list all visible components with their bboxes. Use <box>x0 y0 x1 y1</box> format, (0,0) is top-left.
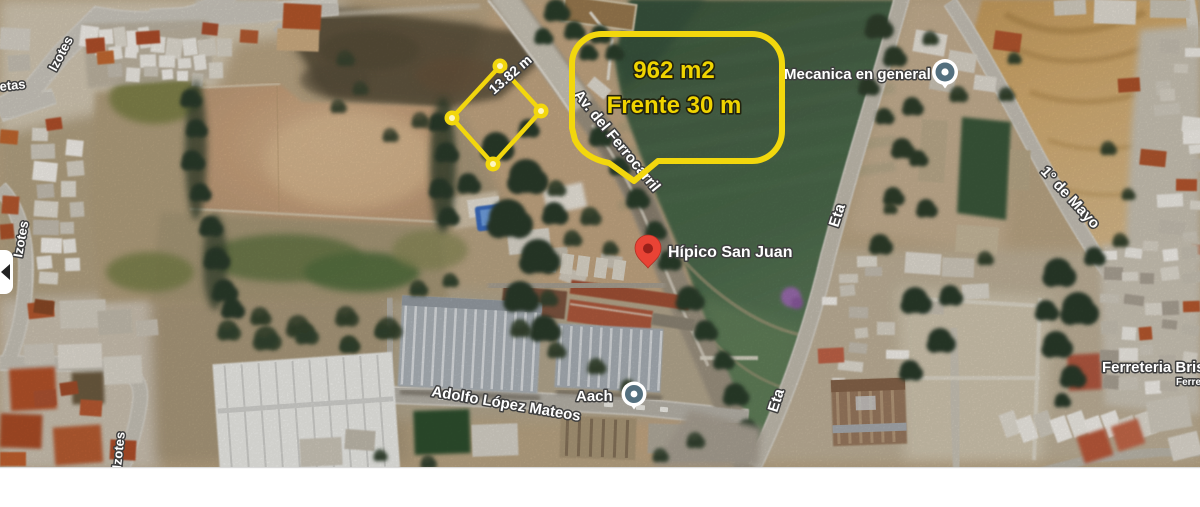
svg-text:Ferreteria Bris: Ferreteria Bris <box>1102 359 1200 376</box>
svg-text:Ferre: Ferre <box>1176 377 1200 388</box>
svg-text:Mecanica en general: Mecanica en general <box>784 66 931 83</box>
svg-text:Hípico San Juan: Hípico San Juan <box>668 244 792 261</box>
svg-text:etas: etas <box>0 76 26 94</box>
svg-text:Aach: Aach <box>576 388 613 405</box>
svg-text:962 m2: 962 m2 <box>633 57 714 84</box>
svg-text:Frente 30 m: Frente 30 m <box>607 92 742 119</box>
